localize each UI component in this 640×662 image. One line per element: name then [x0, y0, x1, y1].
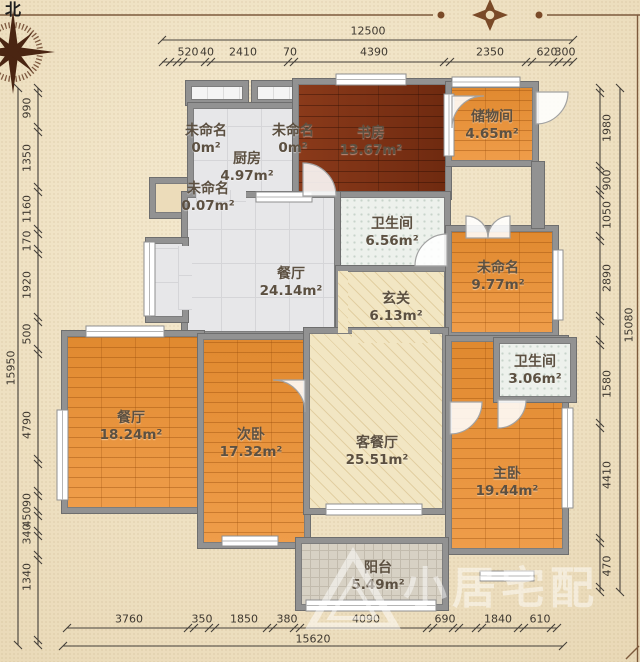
- room-name: 书房: [340, 124, 403, 142]
- dimension-label: 1160: [21, 195, 34, 223]
- dimension-label: 4390: [360, 46, 388, 59]
- room-name: 玄关: [369, 290, 422, 308]
- room-label-unnamed-right: 未命名9.77m²: [471, 259, 524, 295]
- room-name: 未命名: [471, 259, 524, 277]
- dimension-label: 500: [21, 324, 34, 345]
- dimension-label: 1850: [230, 613, 258, 626]
- dimension-label: 2890: [601, 264, 614, 292]
- room-label-living: 客餐厅25.51m²: [346, 434, 409, 470]
- wall-opening: [178, 246, 192, 310]
- dimension-label: 470: [601, 556, 614, 577]
- dimension-label: 300: [555, 46, 576, 59]
- dimension-label: 990: [21, 98, 34, 119]
- dimension-label: 1920: [21, 271, 34, 299]
- room-area: 13.67m²: [340, 142, 403, 160]
- room-name: 未命名: [185, 122, 227, 140]
- room-area: 3.06m²: [508, 371, 561, 389]
- dimension-label: 2410: [229, 46, 257, 59]
- room-area: 17.32m²: [220, 444, 283, 462]
- dimension-label: 3760: [115, 613, 143, 626]
- wall-opening: [352, 330, 430, 343]
- room-area: 0.07m²: [181, 198, 234, 216]
- dimension-label: 1580: [601, 370, 614, 398]
- dimension-label: 350: [192, 613, 213, 626]
- room-area: 9.77m²: [471, 277, 524, 295]
- room-label-bedroom2: 次卧17.32m²: [220, 426, 283, 462]
- room-area: 4.97m²: [220, 168, 273, 186]
- room-area: 4.65m²: [465, 126, 518, 144]
- dimension-label: 380: [277, 613, 298, 626]
- dimension-label: 15950: [5, 351, 18, 386]
- watermark-text: 小居宅配: [403, 552, 599, 616]
- dimension-label: 15080: [623, 308, 636, 343]
- dimension-label: 90: [21, 493, 34, 507]
- room-label-dining2: 餐厅18.24m²: [100, 409, 163, 445]
- room-area: 18.24m²: [100, 427, 163, 445]
- dimension-label: 2350: [476, 46, 504, 59]
- room-area: 25.51m²: [346, 452, 409, 470]
- dimension-ticks: [159, 58, 577, 66]
- room-label-storage: 储物间4.65m²: [465, 108, 518, 144]
- dimension-label: 1340: [21, 563, 34, 591]
- room-label-master: 主卧19.44m²: [476, 465, 539, 501]
- dimension-label: 900: [601, 170, 614, 191]
- room-area: 19.44m²: [476, 483, 539, 501]
- dimension-label: 12500: [351, 25, 386, 38]
- room-area: 6.56m²: [365, 233, 418, 251]
- room-closet-left[interactable]: [186, 81, 248, 105]
- room-name: 厨房: [220, 150, 273, 168]
- room-name: 客餐厅: [346, 434, 409, 452]
- north-label: 北: [5, 0, 21, 20]
- room-name: 未命名: [272, 122, 314, 140]
- floor-plan-canvas: 北 小居宅配 未命名0m²未命名0m²未命名0.: [0, 0, 640, 662]
- room-area: 0m²: [272, 140, 314, 158]
- room-living[interactable]: [304, 328, 448, 514]
- room-name: 卫生间: [508, 353, 561, 371]
- dimension-label: 520: [178, 46, 199, 59]
- dimension-label: 1050: [601, 201, 614, 229]
- dimension-ticks: [596, 84, 604, 596]
- compass-icon: [0, 10, 55, 94]
- room-area: 6.13m²: [369, 308, 422, 326]
- room-name: 储物间: [465, 108, 518, 126]
- room-name: 餐厅: [260, 265, 323, 283]
- dimension-label: 4410: [601, 461, 614, 489]
- dimension-label: 340: [21, 524, 34, 545]
- room-label-bath-small: 卫生间3.06m²: [508, 353, 561, 389]
- door-arc-icon: [536, 92, 568, 124]
- room-label-foyer: 玄关6.13m²: [369, 290, 422, 326]
- dimension-label: 170: [21, 231, 34, 252]
- dimension-label: 70: [283, 46, 297, 59]
- dimension-label: 40: [200, 46, 214, 59]
- dimension-label: 4790: [21, 411, 34, 439]
- room-label-study: 书房13.67m²: [340, 124, 403, 160]
- room-name: 次卧: [220, 426, 283, 444]
- room-name: 餐厅: [100, 409, 163, 427]
- wall-opening: [338, 271, 348, 333]
- room-name: 卫生间: [365, 215, 418, 233]
- dimension-ticks: [34, 84, 42, 649]
- dimension-label: 1980: [601, 114, 614, 142]
- wall-segment: [532, 162, 544, 228]
- room-label-closet-right: 未命名0m²: [272, 122, 314, 158]
- watermark-logo-icon: [296, 540, 406, 640]
- room-name: 主卧: [476, 465, 539, 483]
- room-label-bath-main: 卫生间6.56m²: [365, 215, 418, 251]
- room-label-dining: 餐厅24.14m²: [260, 265, 323, 301]
- dimension-label: 1350: [21, 144, 34, 172]
- room-label-kitchen: 厨房4.97m²: [220, 150, 273, 186]
- room-area: 24.14m²: [260, 283, 323, 301]
- ornament-icon: [438, 0, 543, 31]
